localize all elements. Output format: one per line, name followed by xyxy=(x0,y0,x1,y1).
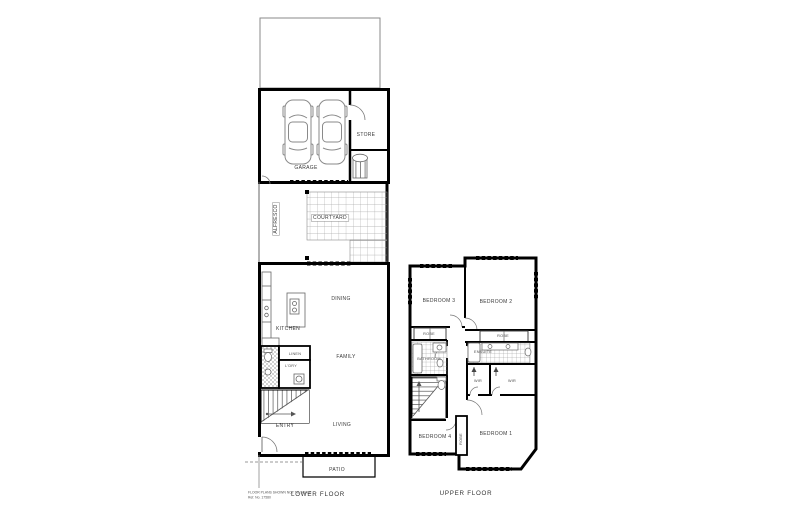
room-label-dining: DINING xyxy=(331,297,350,302)
room-label-garage: GARAGE xyxy=(294,166,317,171)
fine-print-line1: FLOOR PLANS SHOWN NOT TO SCALE xyxy=(248,491,311,495)
room-label-bedroom3: BEDROOM 3 xyxy=(423,299,456,304)
stairs-icon xyxy=(261,390,309,423)
car-icon xyxy=(317,100,347,164)
toilet-icon xyxy=(437,377,446,390)
courtyard-tiles xyxy=(307,192,387,262)
toilet-icon xyxy=(264,349,272,353)
room-label-entry: ENTRY xyxy=(276,424,294,429)
lower-floor-plan xyxy=(245,10,395,515)
basin-icon xyxy=(265,369,271,375)
room-label-patio: PATIO xyxy=(329,468,345,473)
upper-floor-plan xyxy=(400,250,545,505)
room-label-alfresco: ALFRESCO xyxy=(273,202,280,235)
room-label-laundry: L'DRY xyxy=(285,364,297,368)
lot-boundary xyxy=(260,18,380,88)
room-label-linen: LINEN xyxy=(289,352,301,356)
car-icon xyxy=(283,100,313,164)
room-label-family: FAMILY xyxy=(336,355,355,360)
room-label-store: STORE xyxy=(357,133,376,138)
room-label-wir-left: WIR xyxy=(474,379,482,383)
room-label-bathroom: BATHROOM xyxy=(417,357,441,361)
room-label-wir-right: WIR xyxy=(508,379,516,383)
room-label-kitchen: KITCHEN xyxy=(276,327,300,332)
fine-print-line2: Ref. No. 17580 xyxy=(248,496,271,500)
room-label-ensuite: ENSUITE xyxy=(474,350,492,354)
room-label-robe-bed2: ROBE xyxy=(497,334,509,338)
room-label-bedroom1: BEDROOM 1 xyxy=(480,432,513,437)
room-label-robe-bed1: ROBE xyxy=(459,433,463,445)
powder-room xyxy=(261,346,279,388)
upper-floor-title: UPPER FLOOR xyxy=(440,491,493,497)
room-label-courtyard: COURTYARD xyxy=(311,215,349,222)
room-label-robe-bed3: ROBE xyxy=(423,332,435,336)
room-label-living: LIVING xyxy=(333,423,351,428)
hot-water-unit-icon xyxy=(353,154,368,178)
toilet-icon xyxy=(525,348,531,356)
room-label-bedroom2: BEDROOM 2 xyxy=(480,300,513,305)
room-label-bedroom4: BEDROOM 4 xyxy=(419,435,452,440)
floor-plan-page: GARAGE STORE ALFRESCO COURTYARD DINING K… xyxy=(0,0,790,527)
